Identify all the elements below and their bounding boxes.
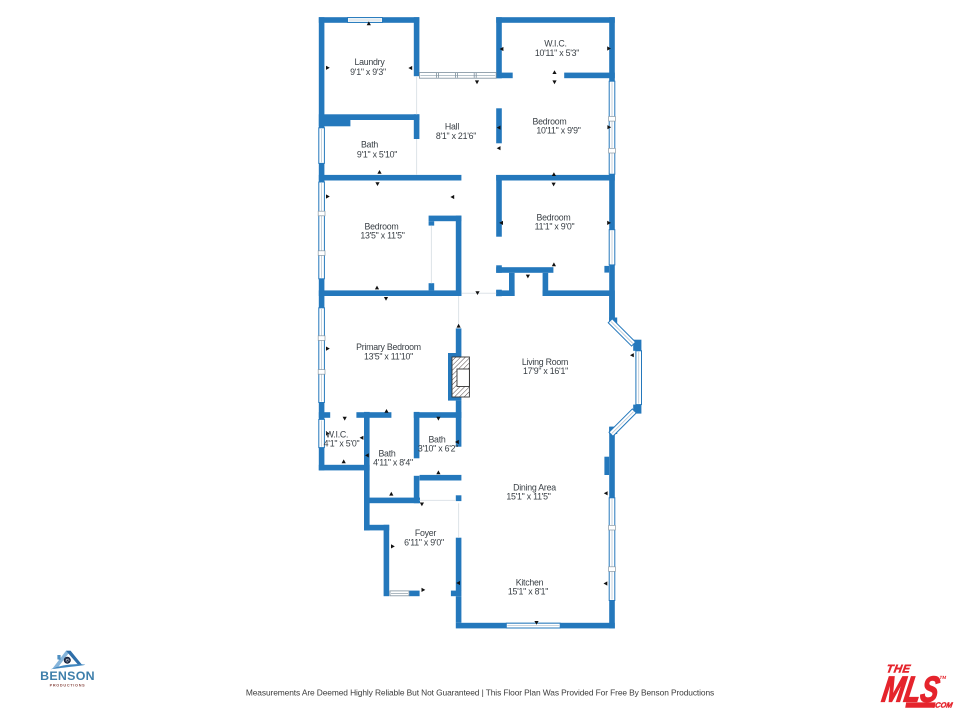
svg-text:TM: TM <box>939 675 947 680</box>
svg-text:13'5" x 11'10": 13'5" x 11'10" <box>364 352 413 362</box>
svg-text:10'11" x 9'9": 10'11" x 9'9" <box>536 126 580 136</box>
svg-text:4'11" x 8'4": 4'11" x 8'4" <box>373 458 413 468</box>
svg-text:17'9" x 16'1": 17'9" x 16'1" <box>523 366 568 376</box>
svg-text:Hall: Hall <box>445 122 459 132</box>
svg-text:Bath: Bath <box>361 140 378 150</box>
svg-text:Foyer: Foyer <box>415 528 437 538</box>
svg-text:Primary Bedroom: Primary Bedroom <box>356 342 421 352</box>
svg-text:PRODUCTIONS: PRODUCTIONS <box>50 683 86 687</box>
svg-text:15'1" x 8'1": 15'1" x 8'1" <box>508 587 548 597</box>
svg-text:10'11" x 5'3": 10'11" x 5'3" <box>535 48 579 58</box>
svg-text:3'10" x 6'2": 3'10" x 6'2" <box>418 444 458 454</box>
svg-text:6'11" x 9'0": 6'11" x 9'0" <box>404 538 444 548</box>
svg-text:4'1" x 5'0": 4'1" x 5'0" <box>324 439 360 449</box>
svg-text:BENSON: BENSON <box>40 669 95 683</box>
svg-text:9'1" x 5'10": 9'1" x 5'10" <box>357 150 397 160</box>
svg-text:13'5" x 11'5": 13'5" x 11'5" <box>360 231 404 241</box>
svg-text:Measurements Are Deemed Highly: Measurements Are Deemed Highly Reliable … <box>246 688 714 698</box>
svg-text:.COM: .COM <box>932 701 954 710</box>
svg-text:Laundry: Laundry <box>354 57 385 67</box>
svg-text:11'1" x 9'0": 11'1" x 9'0" <box>535 222 575 232</box>
svg-text:8'1" x 21'6": 8'1" x 21'6" <box>436 131 476 141</box>
svg-text:W.I.C.: W.I.C. <box>544 39 566 49</box>
svg-text:9'1" x 9'3": 9'1" x 9'3" <box>350 67 386 77</box>
svg-text:15'1" x 11'5": 15'1" x 11'5" <box>506 492 550 502</box>
